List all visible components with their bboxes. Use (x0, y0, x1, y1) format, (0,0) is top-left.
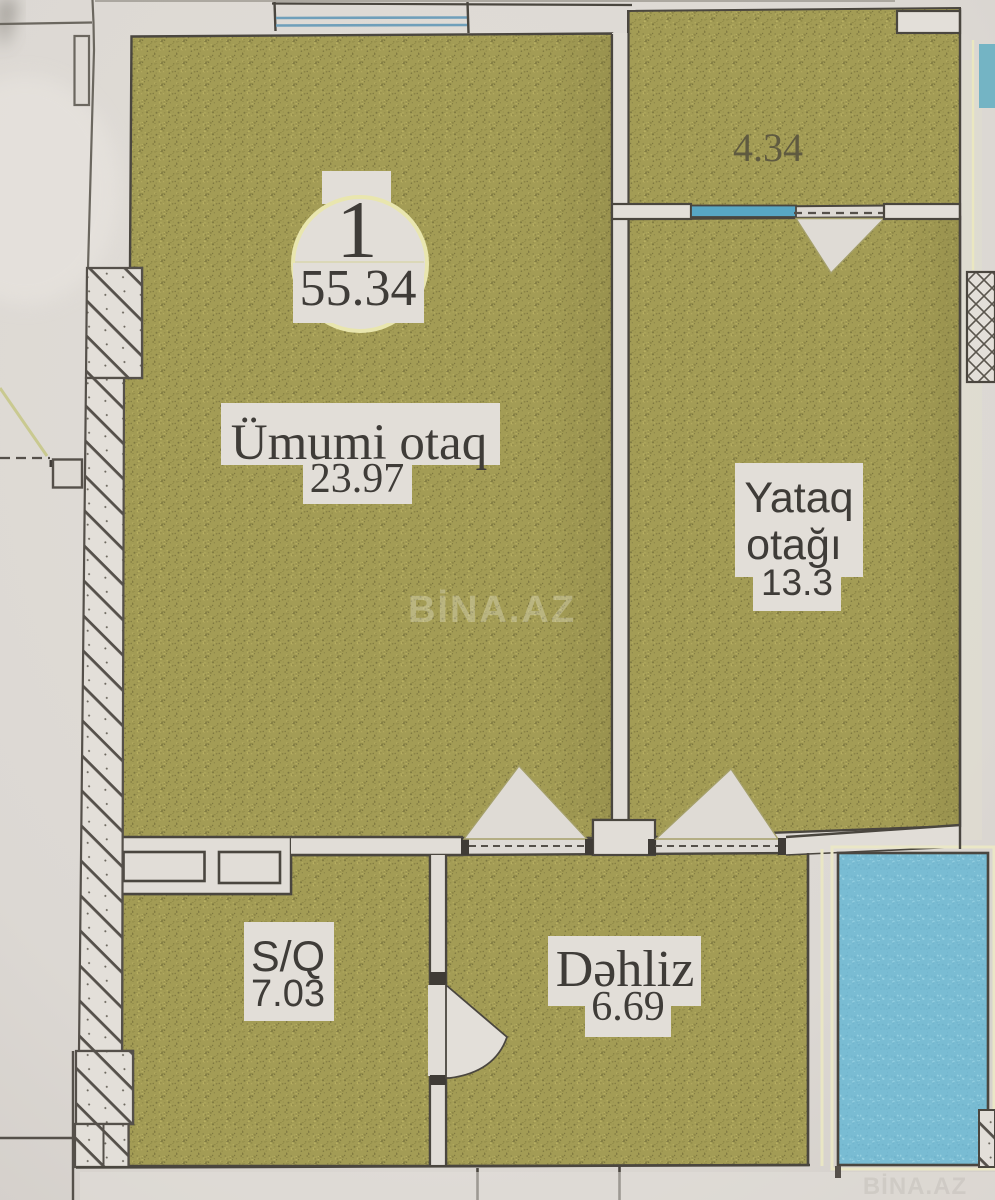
svg-text:55.34: 55.34 (300, 260, 417, 317)
svg-text:4.34: 4.34 (733, 125, 803, 170)
svg-text:7.03: 7.03 (251, 973, 325, 1015)
svg-text:Yataq: Yataq (744, 474, 853, 522)
svg-text:23.97: 23.97 (310, 456, 405, 502)
svg-text:BİNA.AZ: BİNA.AZ (863, 1173, 967, 1200)
svg-text:13.3: 13.3 (761, 562, 833, 603)
svg-text:BİNA.AZ: BİNA.AZ (408, 589, 576, 631)
svg-text:6.69: 6.69 (591, 984, 665, 1030)
